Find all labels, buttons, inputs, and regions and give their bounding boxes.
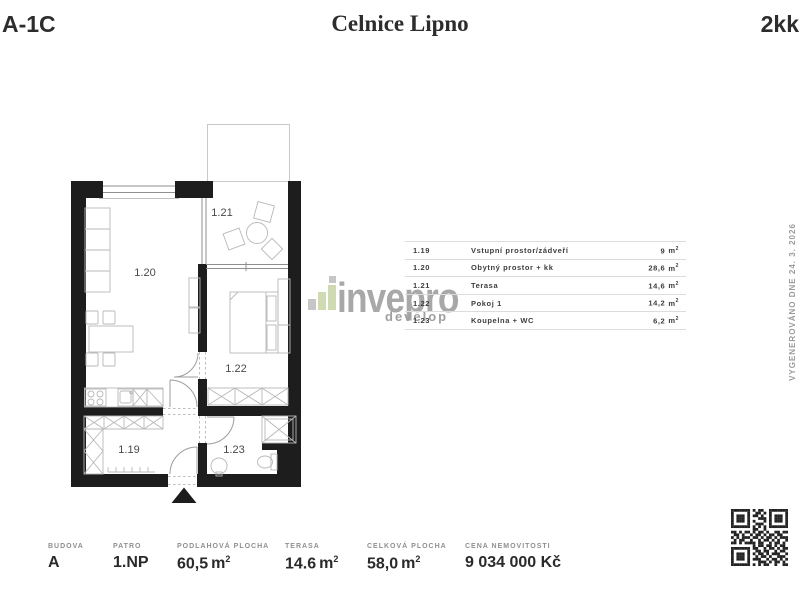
room-area: 6,2m2 (653, 316, 686, 326)
room-label-1-19: 1.19 (118, 444, 139, 456)
room-label-1-23: 1.23 (223, 444, 244, 456)
stat-label: PODLAHOVÁ PLOCHA (177, 543, 269, 550)
stat-label: PATRO (113, 543, 149, 550)
legend-row: 1.21 Terasa 14,6m2 (405, 276, 686, 294)
room-label-1-22: 1.22 (225, 363, 246, 375)
chair (86, 311, 98, 324)
legend-row: 1.22 Pokoj 1 14,2m2 (405, 294, 686, 312)
room-name: Obytný prostor + kk (471, 263, 648, 272)
bed (230, 292, 278, 353)
room-number: 1.20 (405, 263, 471, 272)
generated-date-note: VYGENEROVÁNO DNE 24. 3. 2026 (788, 222, 800, 382)
terrace-chair (223, 228, 245, 250)
stat-value: 1.NP (113, 554, 149, 572)
floorplan-sheet: A-1C Celnice Lipno 2kk invepro develop (0, 0, 800, 600)
stat-value: 58,0m2 (367, 554, 447, 573)
stat-value: A (48, 554, 84, 572)
room-label-1-21: 1.21 (211, 207, 232, 219)
stat-total-area: CELKOVÁ PLOCHA 58,0m2 (367, 543, 447, 573)
terrace-chair (261, 238, 282, 259)
room-name: Terasa (471, 281, 648, 290)
chair (103, 311, 115, 324)
room-legend-table: 1.19 Vstupní prostor/zádveří 9m2 1.20 Ob… (405, 241, 686, 330)
room-number: 1.23 (405, 316, 471, 325)
stat-value: 14.6m2 (285, 554, 338, 573)
stat-floor-area: PODLAHOVÁ PLOCHA 60,5m2 (177, 543, 269, 573)
toilet (271, 454, 277, 470)
stat-floor: PATRO 1.NP (113, 543, 149, 572)
stat-label: BUDOVA (48, 543, 84, 550)
legend-row: 1.23 Koupelna + WC 6,2m2 (405, 311, 686, 330)
room-area: 14,6m2 (648, 281, 686, 291)
terrace-table (247, 223, 268, 244)
chair (103, 353, 115, 366)
walls (71, 181, 301, 487)
stat-value: 9 034 000 Kč (465, 554, 561, 572)
stat-price: CENA NEMOVITOSTI 9 034 000 Kč (465, 543, 561, 572)
terrace-chair (254, 202, 275, 223)
stat-value: 60,5m2 (177, 554, 269, 573)
room-name: Pokoj 1 (471, 299, 648, 308)
room-number: 1.22 (405, 299, 471, 308)
room-number: 1.21 (405, 281, 471, 290)
bedroom-furniture (208, 279, 290, 405)
entrance-arrow-icon (172, 488, 197, 504)
stat-label: TERASA (285, 543, 338, 550)
legend-row: 1.19 Vstupní prostor/zádveří 9m2 (405, 241, 686, 259)
room-name: Vstupní prostor/zádveří (471, 246, 661, 255)
qr-code (731, 509, 788, 566)
terrace-outline (208, 125, 290, 182)
stat-terrace-area: TERASA 14.6m2 (285, 543, 338, 573)
room-area: 28,6m2 (648, 263, 686, 273)
room-label-1-20: 1.20 (134, 267, 155, 279)
room-area: 9m2 (661, 246, 686, 256)
chair (86, 353, 98, 366)
kitchen-counter (85, 388, 164, 407)
room-area: 14,2m2 (648, 298, 686, 308)
room-number: 1.19 (405, 246, 471, 255)
living-room-furniture (85, 208, 200, 366)
stat-label: CELKOVÁ PLOCHA (367, 543, 447, 550)
legend-row: 1.20 Obytný prostor + kk 28,6m2 (405, 259, 686, 277)
stat-building: BUDOVA A (48, 543, 84, 572)
stat-label: CENA NEMOVITOSTI (465, 543, 561, 550)
dining-table (89, 326, 133, 352)
room-name: Koupelna + WC (471, 316, 653, 325)
